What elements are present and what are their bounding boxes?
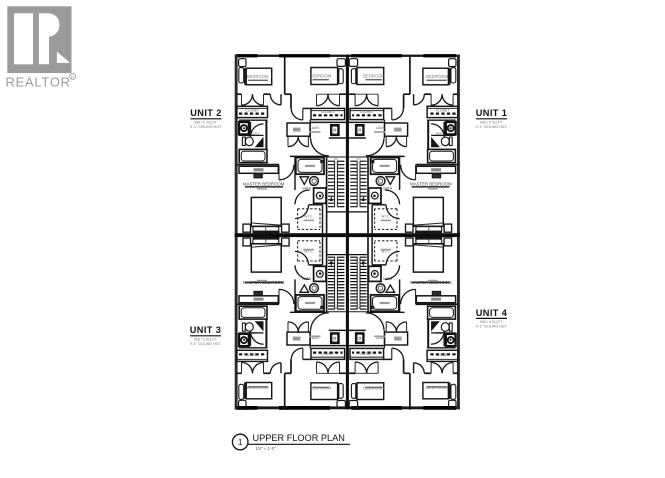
svg-text:UNIT 2: UNIT 2	[190, 108, 222, 118]
svg-text:CLOSET: CLOSET	[360, 352, 374, 356]
svg-text:1/4" = 1'-0": 1/4" = 1'-0"	[256, 446, 277, 451]
svg-text:W.I.C.: W.I.C.	[381, 215, 390, 219]
svg-text:UNIT 4: UNIT 4	[476, 308, 508, 318]
svg-text:996 / 0 SQ.FT.: 996 / 0 SQ.FT.	[480, 320, 503, 324]
svg-text:9'-1" CEILING HGT.: 9'-1" CEILING HGT.	[476, 324, 508, 328]
svg-text:CLOSET: CLOSET	[360, 110, 374, 114]
svg-text:MASTER BEDROOM: MASTER BEDROOM	[243, 181, 285, 186]
svg-text:UNIT 1: UNIT 1	[476, 108, 508, 118]
svg-text:CLOSET: CLOSET	[245, 353, 259, 357]
svg-text:BEDROOM: BEDROOM	[247, 74, 269, 79]
svg-text:9'-1" CEILING HGT.: 9'-1" CEILING HGT.	[190, 342, 222, 346]
svg-text:CLOSET: CLOSET	[245, 109, 259, 113]
svg-text:996 / 0 SQ.FT.: 996 / 0 SQ.FT.	[194, 337, 217, 341]
svg-text:996 / 0 SQ.FT.: 996 / 0 SQ.FT.	[480, 120, 503, 124]
svg-text:REALTOR: REALTOR	[6, 75, 71, 90]
svg-text:LAUN: LAUN	[310, 126, 319, 130]
svg-text:9'-1" CEILING HGT.: 9'-1" CEILING HGT.	[190, 125, 222, 129]
svg-text:DN: DN	[357, 157, 361, 161]
svg-text:R: R	[71, 74, 74, 79]
svg-text:BEDROOM: BEDROOM	[426, 74, 448, 79]
svg-text:BEDROOM: BEDROOM	[310, 74, 332, 79]
svg-text:UNIT 3: UNIT 3	[190, 325, 222, 335]
svg-text:LAUN: LAUN	[376, 126, 385, 130]
svg-text:996 / 0 SQ.FT.: 996 / 0 SQ.FT.	[194, 120, 217, 124]
svg-text:BEDROOM: BEDROOM	[363, 74, 385, 79]
svg-text:9'-1" CEILING HGT.: 9'-1" CEILING HGT.	[476, 125, 508, 129]
svg-text:DN: DN	[334, 157, 338, 161]
svg-text:W.I.C.: W.I.C.	[304, 215, 313, 219]
svg-text:1: 1	[238, 438, 243, 447]
svg-text:CLOSET: CLOSET	[436, 353, 450, 357]
svg-text:CLOSET: CLOSET	[321, 110, 335, 114]
svg-text:MASTER BEDROOM: MASTER BEDROOM	[410, 181, 452, 186]
svg-text:CLOSET: CLOSET	[436, 109, 450, 113]
svg-text:UPPER FLOOR PLAN: UPPER FLOOR PLAN	[253, 433, 345, 443]
svg-text:CLOSET: CLOSET	[321, 352, 335, 356]
